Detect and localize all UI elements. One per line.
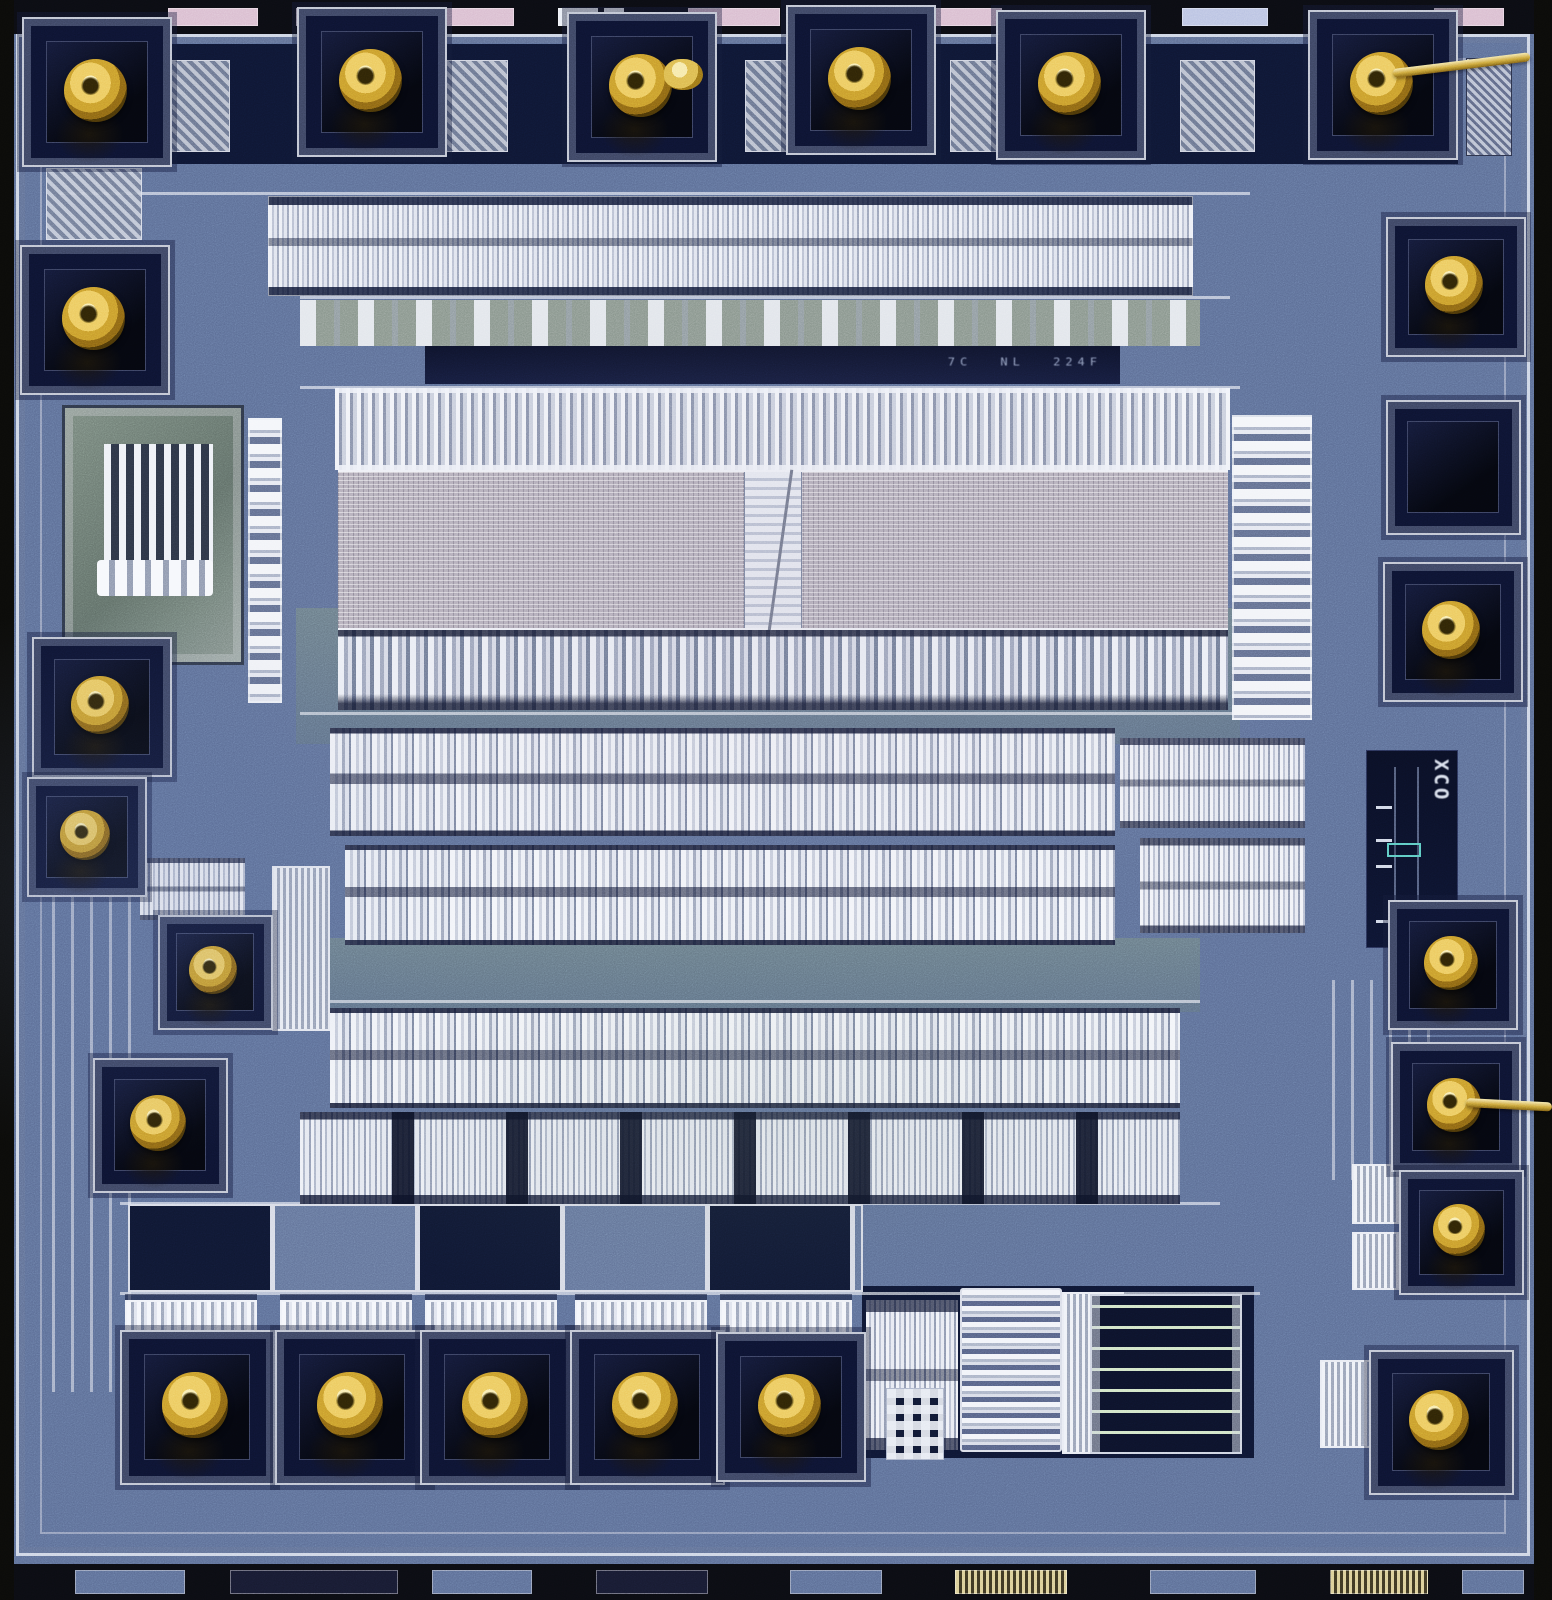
serpentine-resistor: [1090, 1294, 1242, 1454]
scribe-mark: [168, 8, 258, 26]
gold-ball-bond: [60, 810, 110, 860]
bond-pad: [32, 637, 172, 777]
logo-mark: [1466, 58, 1512, 156]
test-structure: [168, 60, 230, 152]
gold-ball-bond: [612, 1372, 677, 1437]
gold-ball-bond: [1350, 52, 1413, 115]
bond-pad: [275, 1330, 430, 1485]
gold-ball-bond: [62, 287, 125, 350]
contact-array: [886, 1388, 944, 1460]
column-driver-row: [335, 388, 1230, 470]
metal-bus-line: [60, 192, 1250, 195]
bond-pad: [1369, 1350, 1514, 1495]
rom-array: [338, 470, 1228, 630]
bond-pad: [786, 5, 936, 155]
output-buffer-row: [300, 1112, 1180, 1204]
bond-pad: [1308, 10, 1458, 160]
scribe-mark: [596, 1570, 708, 1594]
gold-ball-bond: [162, 1372, 227, 1437]
bond-pad: [996, 10, 1146, 160]
bond-pad: [1386, 217, 1526, 357]
scribe-mark: [1330, 1570, 1428, 1594]
standard-cell-row: [330, 728, 1115, 836]
scribe-mark: [1462, 1570, 1524, 1594]
scribe-mark: [75, 1570, 185, 1594]
row-decoder-ladder: [1232, 415, 1312, 720]
standard-cell-row: [345, 845, 1115, 945]
test-structure: [1180, 60, 1255, 152]
gold-ball-bond: [828, 47, 891, 110]
panel-grid: [128, 1204, 863, 1292]
scribe-mark: [432, 1570, 532, 1594]
gold-ball-bond: [758, 1374, 821, 1437]
bond-pad: [27, 777, 147, 897]
gold-ball-bond: [1433, 1204, 1486, 1257]
sparse-cell-band: [300, 300, 1200, 346]
xco-marking-text: XCO: [1430, 759, 1452, 802]
gold-ball-bond: [1038, 52, 1101, 115]
scribe-lane-bottom: [0, 1564, 1552, 1600]
bond-pad: [1388, 900, 1518, 1030]
cell-cluster: [1120, 738, 1305, 828]
bond-pad: [716, 1332, 866, 1482]
die-marking-text: 7C NL 224F: [948, 356, 1102, 369]
meander-resistor: [960, 1288, 1062, 1452]
panel-test-box: [1387, 843, 1421, 857]
scribe-mark: [1182, 8, 1268, 26]
gold-ball-bond: [339, 49, 402, 112]
scribe-mark: [230, 1570, 398, 1594]
panel-tick: [1376, 806, 1392, 809]
bond-pad-opening: [1407, 421, 1499, 513]
bond-pad: [1399, 1170, 1524, 1295]
gold-ball-bond: [609, 54, 672, 117]
scribe-mark: [955, 1570, 1067, 1594]
bond-pad: [158, 915, 273, 1030]
cell-cluster: [1140, 838, 1305, 933]
metal-bus-line: [300, 712, 1240, 715]
gold-ball-bond: [189, 946, 237, 994]
row-decoder-ladder: [248, 418, 282, 703]
gold-ball-bond: [64, 59, 127, 122]
bond-pad: [93, 1058, 228, 1193]
bond-pad: [22, 17, 172, 167]
standard-cell-row: [330, 1008, 1180, 1108]
bond-pad: [297, 7, 447, 157]
analog-cell-block: [62, 405, 244, 665]
gold-bond-blob: [664, 59, 703, 91]
panel-tick: [1376, 839, 1392, 842]
panel-tick: [1376, 865, 1392, 868]
bond-pad: [1383, 562, 1523, 702]
scribe-lane-left: [0, 0, 14, 1600]
scribe-mark: [790, 1570, 882, 1594]
bond-pad: [1386, 400, 1521, 535]
metal-bus-line: [300, 296, 1230, 299]
gold-ball-bond: [317, 1372, 382, 1437]
bond-pad: [20, 245, 170, 395]
bond-pad: [567, 12, 717, 162]
ic-die-photo: 7C NL 224F XCO: [0, 0, 1552, 1600]
sense-driver-row: [338, 630, 1228, 710]
gold-ball-bond: [462, 1372, 527, 1437]
die-marking-band: 7C NL 224F: [425, 344, 1120, 384]
bond-pad: [120, 1330, 275, 1485]
scribe-mark: [930, 8, 1002, 26]
scribe-mark: [1150, 1570, 1256, 1594]
gold-ball-bond: [1424, 936, 1479, 991]
test-structure: [46, 168, 142, 240]
bond-pad: [570, 1330, 725, 1485]
scribe-lane-right: [1534, 0, 1552, 1600]
standard-cell-row: [268, 196, 1193, 296]
poly-capacitor: [272, 866, 330, 1031]
bond-pad: [420, 1330, 575, 1485]
metal-bus-line: [300, 1000, 1200, 1003]
cell-cluster: [140, 858, 245, 920]
